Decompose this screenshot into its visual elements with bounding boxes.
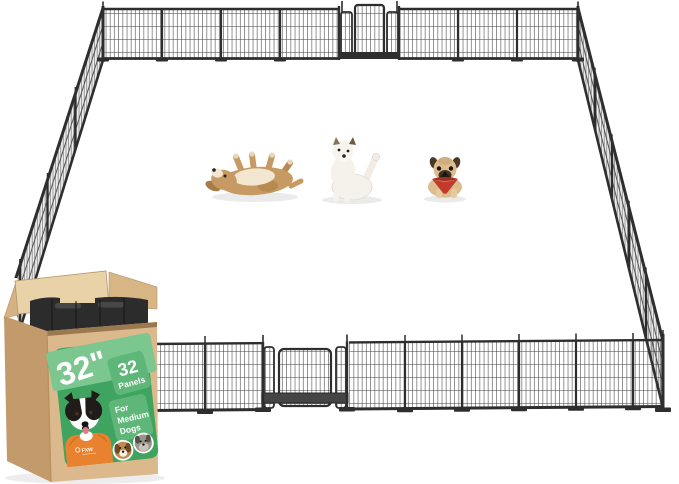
pug-forehead xyxy=(438,157,452,165)
schnauzer-photo-icon xyxy=(133,433,154,454)
front-gate-left-foot xyxy=(255,408,271,413)
sitting-dog-right-ear xyxy=(349,137,356,145)
back-gate-right-strip xyxy=(387,12,398,58)
product-box: 32" tall 32 Panels For Medium Dogs xyxy=(4,271,166,484)
back-fence xyxy=(97,1,584,62)
sitting-dog-eye xyxy=(338,149,341,152)
front-fence-mesh xyxy=(150,340,663,411)
pug-eye xyxy=(437,166,441,170)
back-gate-left-strip xyxy=(341,12,352,58)
box-left-face xyxy=(4,316,51,482)
back-gate-threshold xyxy=(339,52,400,59)
front-fence xyxy=(150,330,671,414)
brand-text: FXW xyxy=(82,447,94,454)
rolling-dog-photo xyxy=(204,151,301,202)
sitting-dog-raised-paw xyxy=(372,153,379,160)
front-gate-right-foot xyxy=(339,407,355,412)
sitting-dog-left-ear xyxy=(333,137,340,145)
sitting-dog-photo xyxy=(322,137,382,204)
back-gate xyxy=(339,1,400,60)
rolling-dog-paw xyxy=(269,152,274,157)
panel-handle-slot xyxy=(98,302,124,308)
rolling-dog-paw xyxy=(249,151,254,156)
panel-handle-slot xyxy=(55,303,81,309)
rolling-dog-paw xyxy=(233,153,238,158)
rolling-dog-eye xyxy=(224,175,227,178)
front-gate-threshold xyxy=(262,393,348,403)
dogs xyxy=(204,137,466,204)
rolling-dog-paw xyxy=(287,159,292,164)
pug-eye xyxy=(449,166,453,170)
product-image: 32" tall 32 Panels For Medium Dogs xyxy=(0,0,679,484)
rolling-dog-tail xyxy=(291,181,301,186)
rolling-dog-nose xyxy=(212,168,216,172)
pug-dog-photo xyxy=(424,156,466,203)
product-image-canvas: 32" tall 32 Panels For Medium Dogs xyxy=(0,0,679,484)
beagle-photo-icon xyxy=(113,440,134,461)
front-gate xyxy=(255,335,355,413)
back-gate-door xyxy=(355,5,384,57)
pug-nose xyxy=(443,172,446,175)
right-fence-top-rail xyxy=(578,8,663,341)
sitting-dog-eye xyxy=(347,150,350,153)
sitting-dog-nose xyxy=(342,154,346,158)
pug-front-paw xyxy=(451,189,457,198)
